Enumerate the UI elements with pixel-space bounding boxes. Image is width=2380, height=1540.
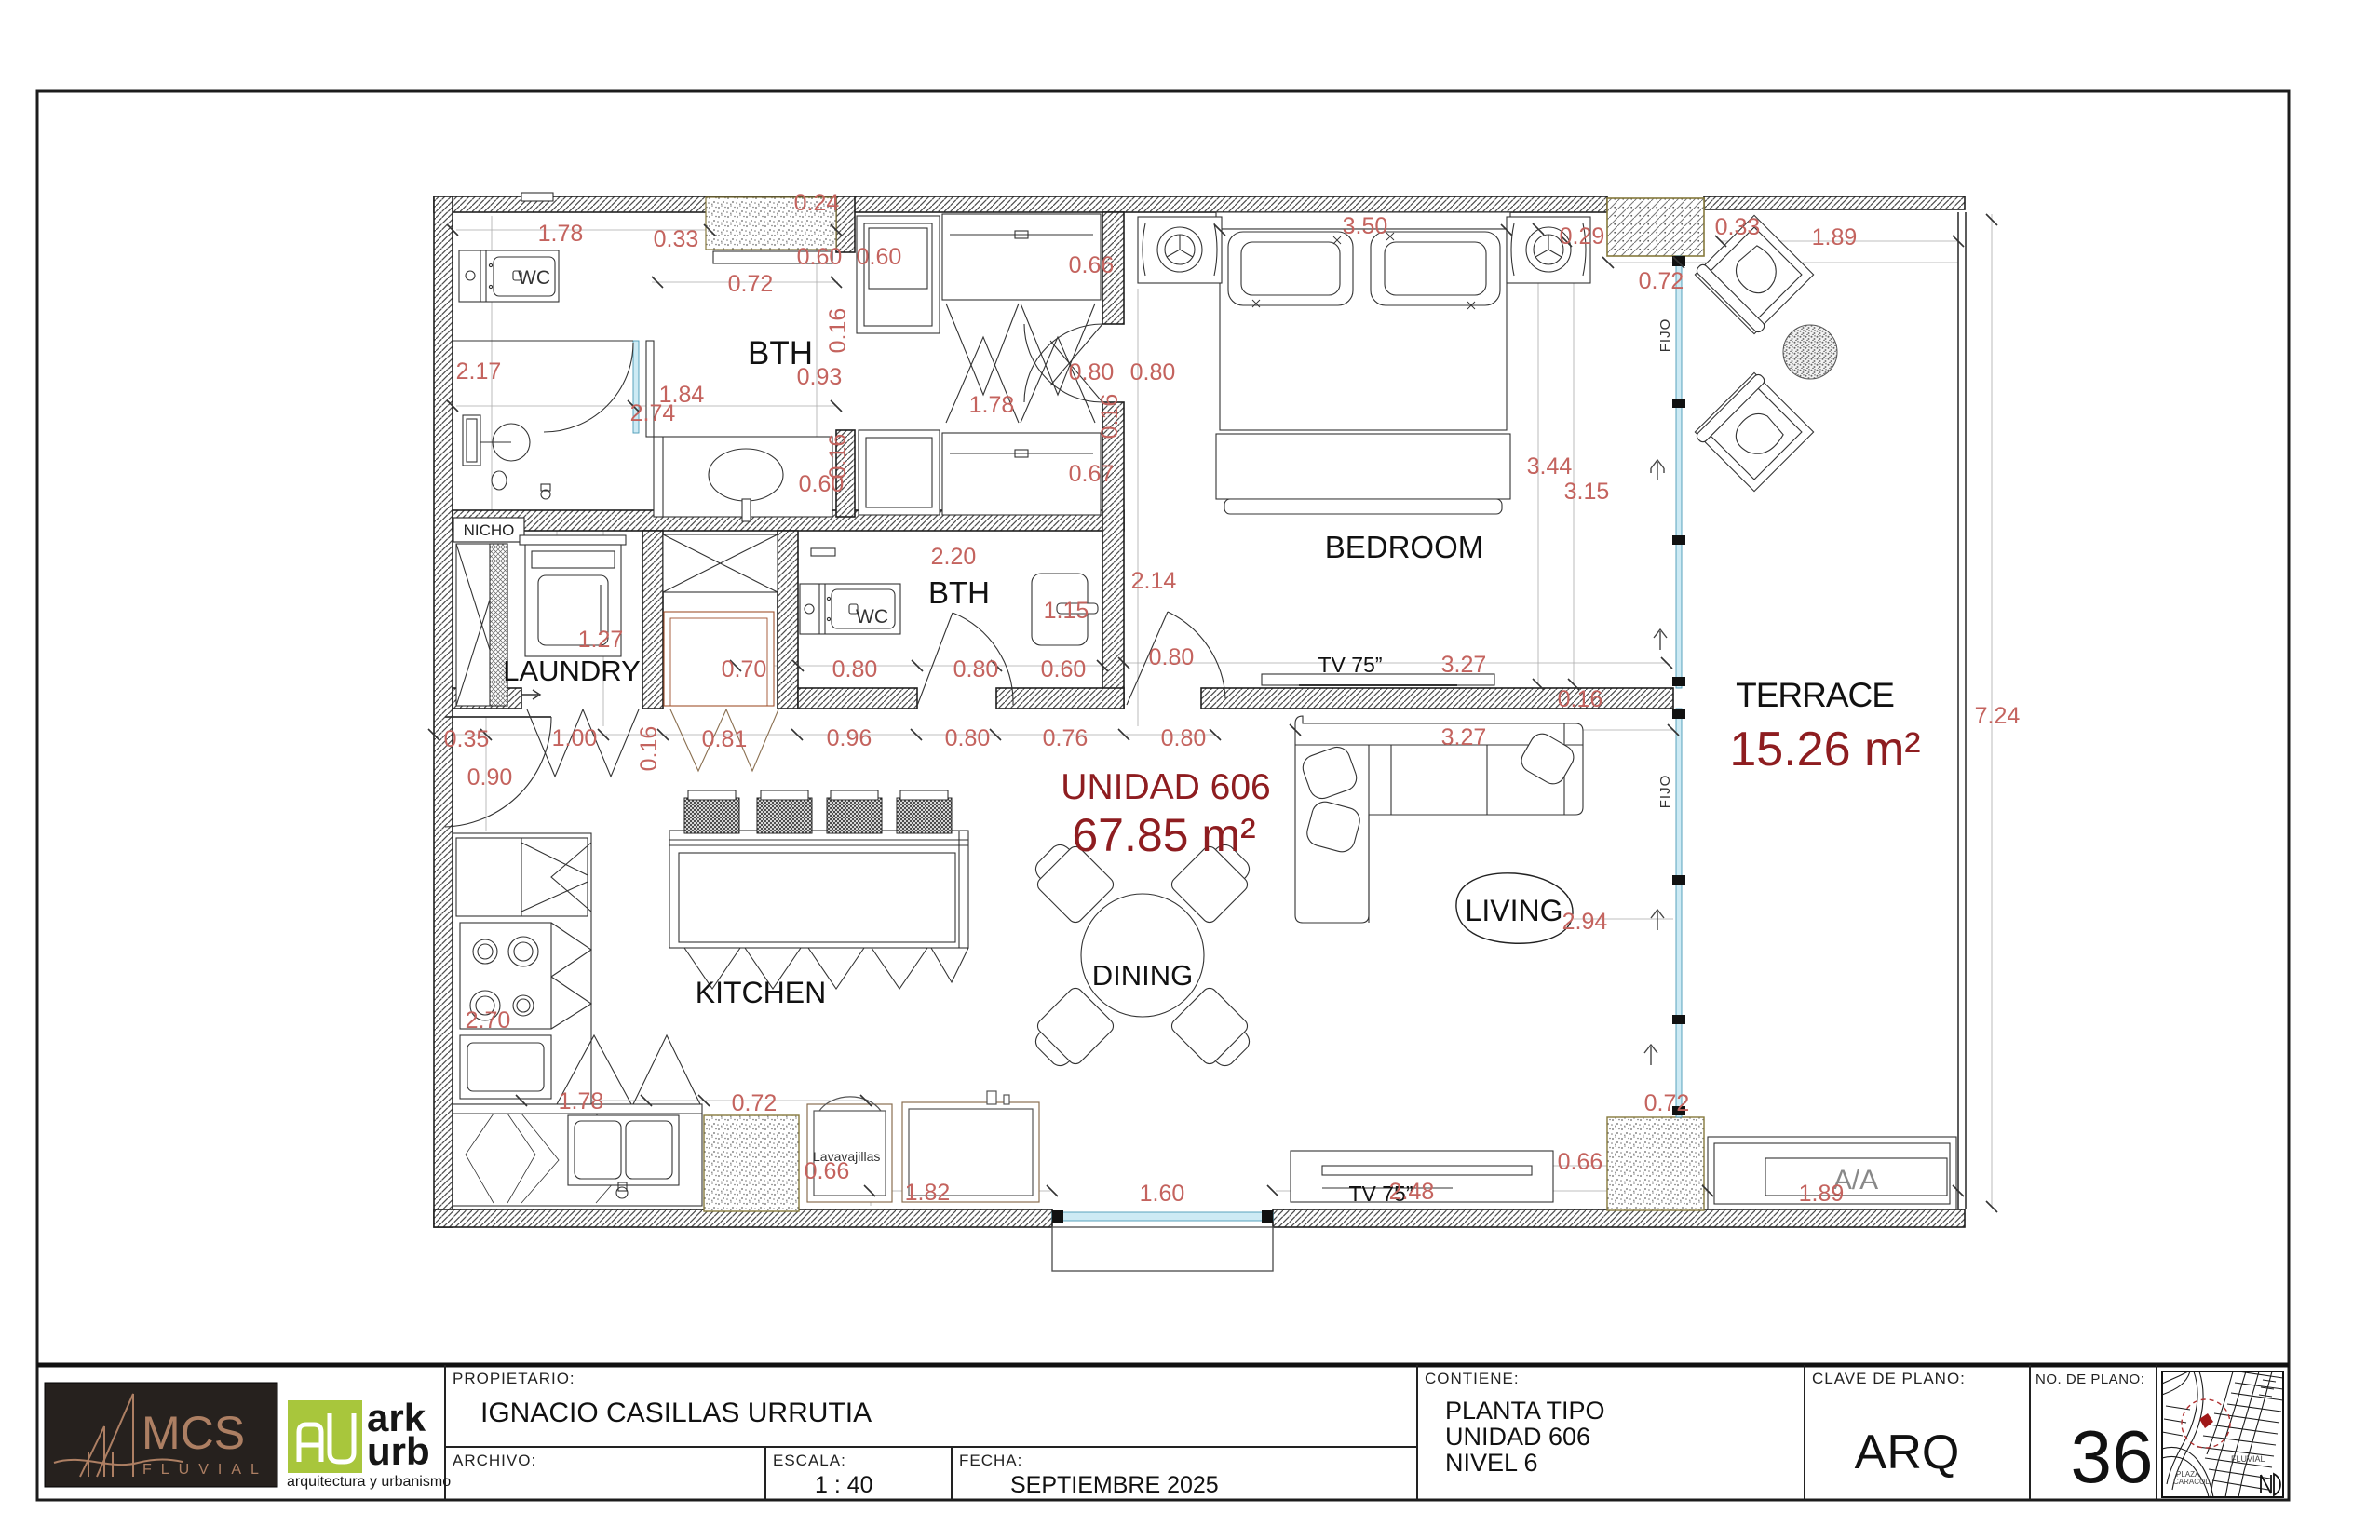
svg-text:1.89: 1.89	[1812, 224, 1858, 250]
svg-text:BTH: BTH	[748, 335, 813, 371]
svg-text:CONTIENE:: CONTIENE:	[1425, 1370, 1520, 1387]
svg-text:urb: urb	[367, 1429, 430, 1473]
svg-text:ARQ: ARQ	[1855, 1425, 1960, 1479]
svg-text:0.66: 0.66	[805, 1158, 850, 1184]
svg-text:0.16: 0.16	[1558, 686, 1603, 712]
svg-text:0.72: 0.72	[728, 271, 774, 297]
svg-text:0.60: 0.60	[857, 244, 902, 270]
svg-text:1.27: 1.27	[578, 627, 624, 653]
svg-text:0.66: 0.66	[1558, 1149, 1603, 1175]
svg-text:UNIDAD 606: UNIDAD 606	[1445, 1423, 1590, 1451]
svg-text:0.16: 0.16	[1097, 394, 1123, 439]
svg-text:NO. DE PLANO:: NO. DE PLANO:	[2035, 1371, 2144, 1387]
svg-text:1.78: 1.78	[538, 221, 584, 247]
svg-text:2.17: 2.17	[456, 358, 502, 385]
svg-text:0.29: 0.29	[1560, 223, 1605, 250]
svg-text:FIJO: FIJO	[1657, 775, 1673, 809]
svg-text:NIVEL 6: NIVEL 6	[1445, 1449, 1538, 1477]
svg-text:0.80: 0.80	[1161, 725, 1207, 751]
svg-text:LAUNDRY: LAUNDRY	[503, 655, 641, 687]
svg-text:0.16: 0.16	[825, 434, 851, 480]
svg-text:1.15: 1.15	[1044, 598, 1089, 624]
svg-text:WC: WC	[518, 267, 550, 289]
svg-text:IGNACIO CASILLAS URRUTIA: IGNACIO CASILLAS URRUTIA	[480, 1398, 872, 1428]
svg-text:3.44: 3.44	[1527, 453, 1573, 480]
svg-text:DINING: DINING	[1092, 959, 1194, 992]
svg-text:67.85 m²: 67.85 m²	[1072, 809, 1255, 861]
svg-text:3.15: 3.15	[1564, 479, 1610, 505]
svg-text:1.60: 1.60	[1140, 1181, 1185, 1207]
svg-text:0.72: 0.72	[1644, 1090, 1690, 1116]
svg-text:FLUVIAL: FLUVIAL	[2231, 1454, 2265, 1464]
svg-text:0.76: 0.76	[1043, 725, 1089, 751]
svg-text:TERRACE: TERRACE	[1736, 676, 1894, 714]
svg-text:0.16: 0.16	[636, 726, 662, 772]
svg-text:CLAVE DE PLANO:: CLAVE DE PLANO:	[1812, 1370, 1966, 1387]
svg-text:0.80: 0.80	[1130, 359, 1176, 385]
svg-text:WC: WC	[856, 606, 888, 628]
svg-text:2.20: 2.20	[931, 544, 977, 570]
svg-text:CARACOL: CARACOL	[2173, 1478, 2210, 1486]
svg-text:FIJO: FIJO	[1657, 318, 1673, 353]
svg-text:0.90: 0.90	[467, 764, 513, 790]
svg-text:7.24: 7.24	[1975, 703, 2021, 729]
svg-text:1.78: 1.78	[969, 392, 1015, 418]
svg-text:BTH: BTH	[928, 575, 990, 610]
svg-text:0.67: 0.67	[1069, 461, 1115, 487]
svg-text:arquitectura y urbanismo: arquitectura y urbanismo	[287, 1474, 451, 1490]
svg-text:BEDROOM: BEDROOM	[1325, 530, 1484, 564]
svg-text:ESCALA:: ESCALA:	[773, 1452, 846, 1469]
svg-text:36: 36	[2071, 1415, 2154, 1498]
svg-text:0.70: 0.70	[722, 656, 767, 682]
svg-text:MCS: MCS	[142, 1407, 245, 1459]
svg-text:0.60: 0.60	[1041, 656, 1087, 682]
svg-text:UNIDAD 606: UNIDAD 606	[1061, 767, 1270, 807]
svg-text:0.81: 0.81	[702, 726, 748, 752]
svg-text:0.24: 0.24	[794, 190, 840, 216]
svg-text:0.33: 0.33	[654, 226, 699, 252]
svg-text:0.16: 0.16	[825, 308, 851, 354]
svg-text:15.26 m²: 15.26 m²	[1729, 723, 1920, 777]
svg-text:0.80: 0.80	[1069, 359, 1115, 385]
svg-text:PROPIETARIO:: PROPIETARIO:	[453, 1370, 575, 1387]
svg-text:3.27: 3.27	[1441, 652, 1487, 678]
svg-text:0.96: 0.96	[827, 725, 872, 751]
svg-text:0.66: 0.66	[1069, 252, 1115, 278]
svg-text:0.80: 0.80	[832, 656, 878, 682]
svg-text:0.72: 0.72	[1639, 268, 1684, 294]
svg-text:FECHA:: FECHA:	[959, 1452, 1022, 1469]
svg-text:LIVING: LIVING	[1466, 894, 1563, 927]
svg-text:PLANTA TIPO: PLANTA TIPO	[1445, 1397, 1605, 1425]
svg-text:3.27: 3.27	[1441, 724, 1487, 750]
svg-text:2.14: 2.14	[1131, 568, 1177, 594]
svg-text:0.80: 0.80	[945, 725, 991, 751]
svg-text:1.82: 1.82	[905, 1180, 951, 1206]
svg-text:0.33: 0.33	[1715, 214, 1761, 240]
svg-text:1.00: 1.00	[552, 725, 598, 751]
svg-text:NICHO: NICHO	[464, 521, 515, 539]
svg-text:1.89: 1.89	[1799, 1181, 1845, 1207]
svg-text:SEPTIEMBRE 2025: SEPTIEMBRE 2025	[1010, 1472, 1219, 1498]
svg-text:0.60: 0.60	[797, 244, 843, 270]
svg-text:ARCHIVO:: ARCHIVO:	[453, 1452, 536, 1469]
svg-text:2.48: 2.48	[1389, 1179, 1435, 1205]
svg-text:FLUVIAL: FLUVIAL	[142, 1462, 268, 1478]
svg-text:0.35: 0.35	[444, 726, 490, 752]
svg-text:3.50: 3.50	[1343, 213, 1388, 239]
svg-text:2.70: 2.70	[466, 1007, 511, 1033]
svg-text:2.74: 2.74	[630, 400, 676, 426]
svg-text:0.80: 0.80	[953, 656, 999, 682]
svg-text:1.78: 1.78	[559, 1088, 604, 1114]
svg-text:0.80: 0.80	[1149, 644, 1195, 670]
svg-text:TV 75”: TV 75”	[1318, 653, 1382, 677]
svg-text:1 : 40: 1 : 40	[815, 1472, 873, 1498]
svg-text:0.72: 0.72	[732, 1090, 778, 1116]
svg-text:2.94: 2.94	[1562, 909, 1608, 935]
svg-text:KITCHEN: KITCHEN	[696, 976, 826, 1009]
